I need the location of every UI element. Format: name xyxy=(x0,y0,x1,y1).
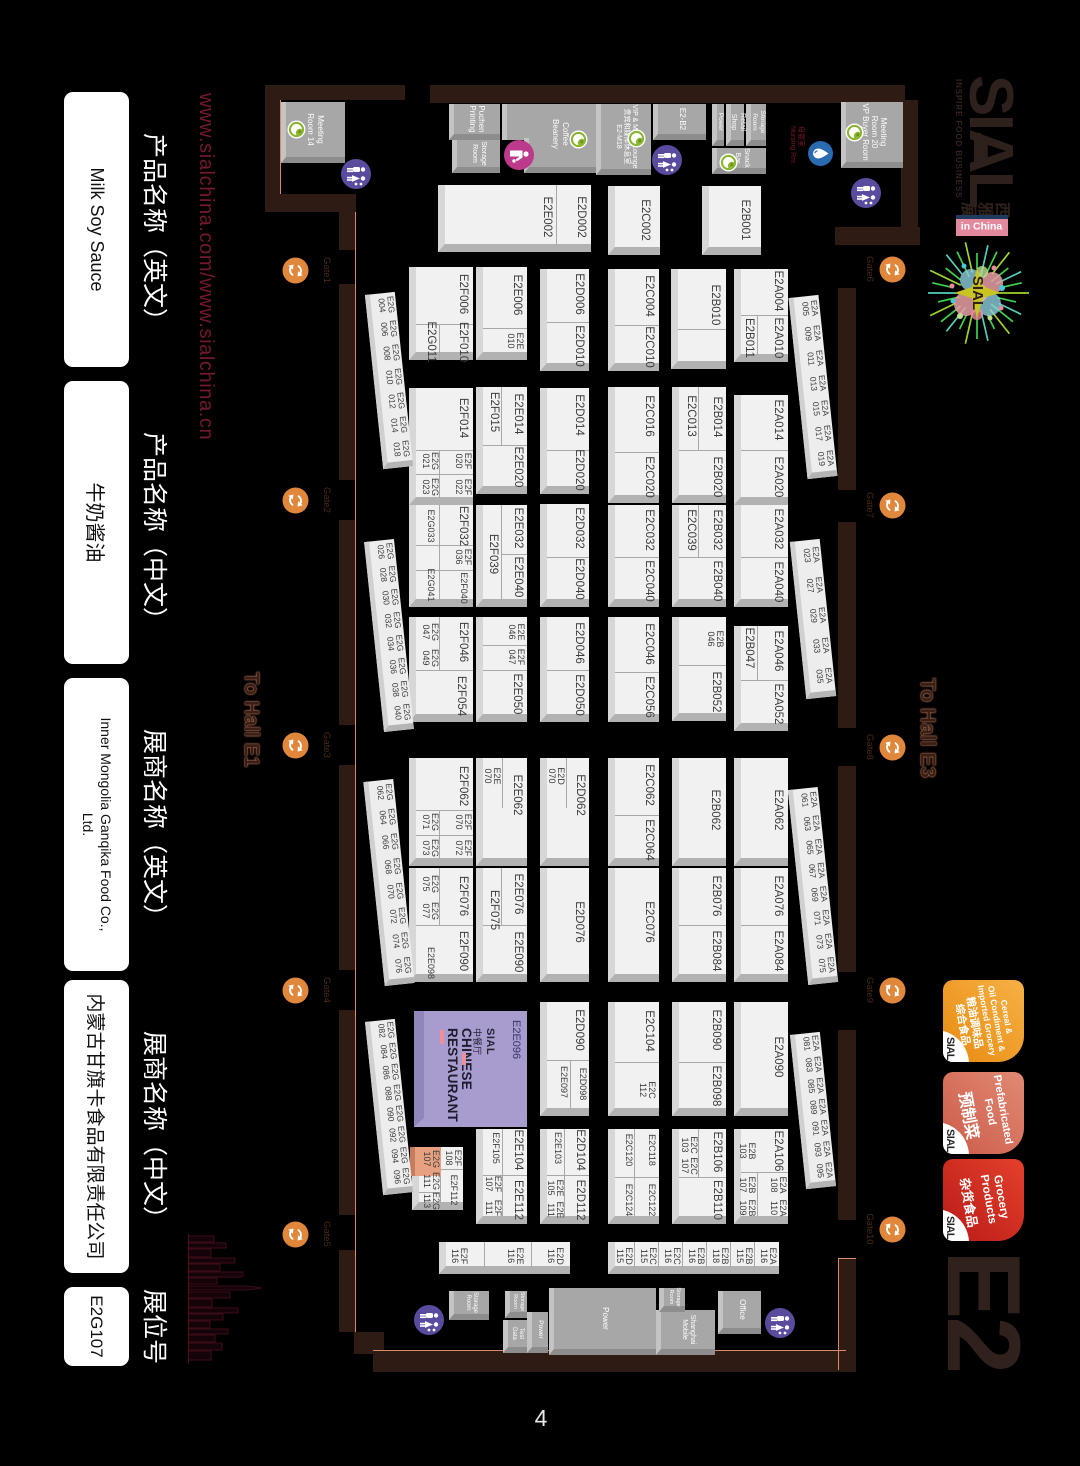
svg-text:SIAL: SIAL xyxy=(969,276,986,310)
